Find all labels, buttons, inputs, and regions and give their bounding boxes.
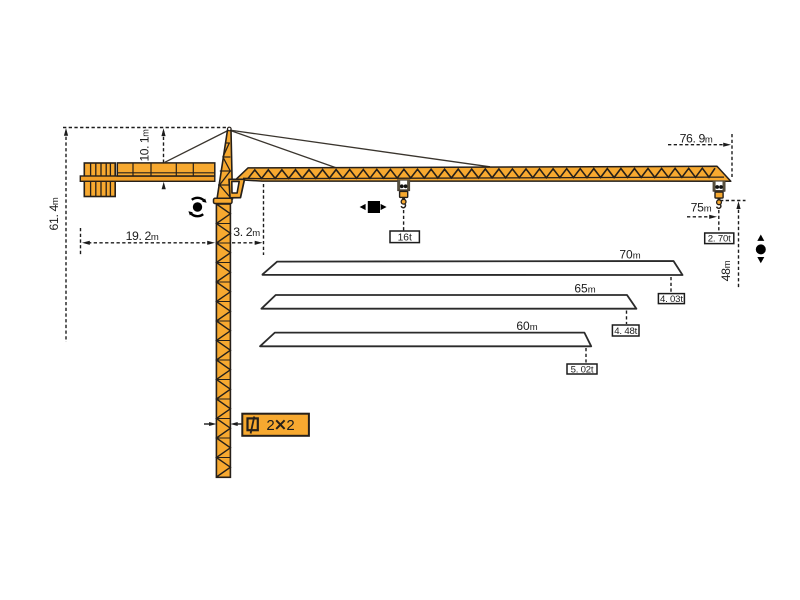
svg-text:76. 9m: 76. 9m — [680, 131, 713, 145]
svg-text:65m: 65m — [574, 282, 595, 296]
svg-text:2. 70t: 2. 70t — [708, 233, 731, 244]
svg-text:61. 4m: 61. 4m — [47, 197, 61, 230]
svg-text:4. 48t: 4. 48t — [614, 326, 637, 337]
svg-text:4. 03t: 4. 03t — [660, 294, 683, 305]
svg-text:60m: 60m — [516, 319, 537, 333]
svg-text:2: 2 — [286, 417, 294, 434]
svg-text:2: 2 — [266, 417, 274, 434]
svg-text:16t: 16t — [398, 232, 412, 243]
svg-text:75m: 75m — [691, 201, 712, 215]
svg-text:48m: 48m — [719, 260, 733, 281]
svg-text:10. 1m: 10. 1m — [138, 129, 152, 162]
svg-text:19. 2m: 19. 2m — [126, 229, 159, 243]
svg-text:3. 2m: 3. 2m — [233, 225, 260, 239]
svg-text:5. 02t: 5. 02t — [571, 364, 594, 375]
svg-text:70m: 70m — [619, 248, 640, 262]
